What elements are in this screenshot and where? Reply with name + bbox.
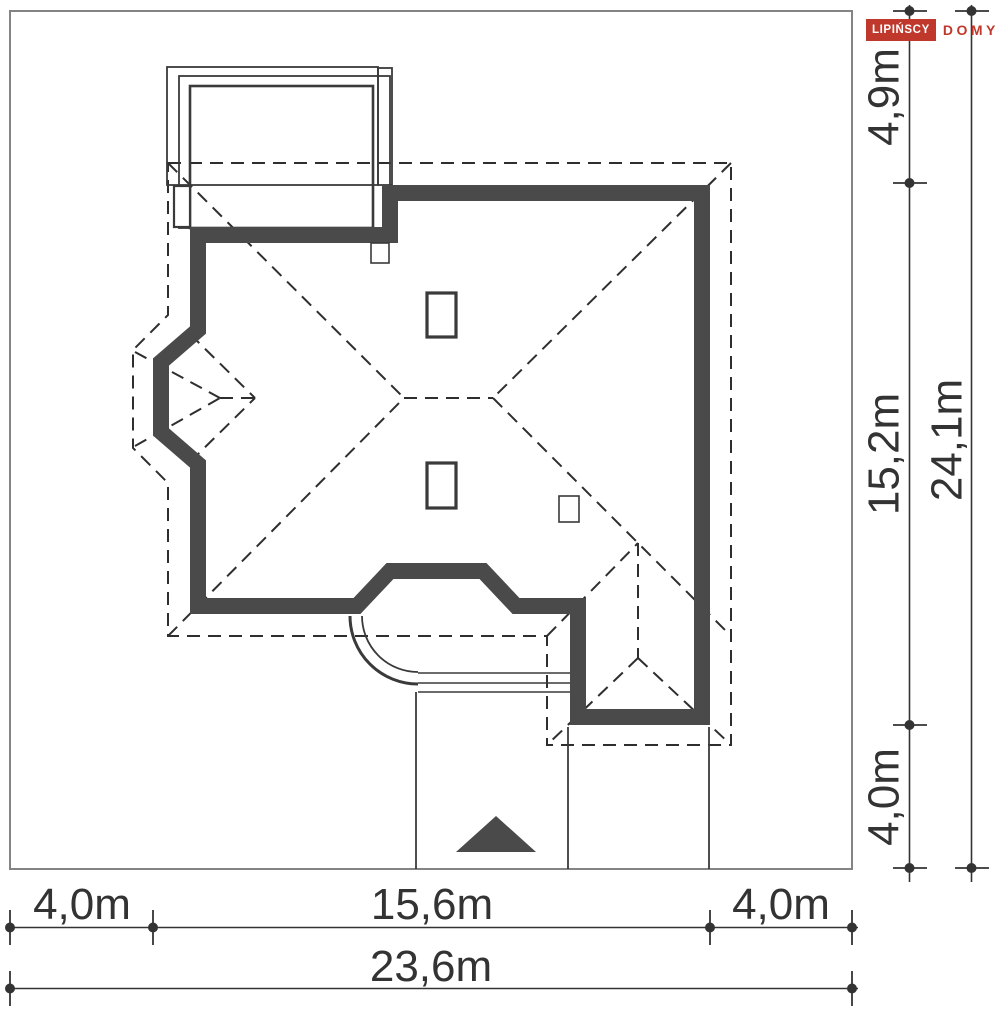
- roof-valley-line: [547, 543, 638, 636]
- dimension-markers: [5, 6, 989, 1006]
- dim-label-bottom-center: 15,6m: [371, 880, 493, 929]
- logo-brand-box: LIPIŃSCY: [866, 19, 936, 41]
- plot-boundary: [10, 11, 852, 869]
- bay-hip-upper-inner: [190, 334, 255, 398]
- bay-hip-upper-outer: [135, 352, 220, 398]
- pergola-mid-outline: [179, 76, 390, 228]
- dim-label-right-bottom: 4,0m: [859, 748, 908, 846]
- chimney-1: [427, 293, 456, 337]
- dim-label-right-total: 24,1m: [922, 379, 971, 501]
- site-plan-page: 4,9m 15,2m 4,0m 24,1m 4,0m 15,6m 4,0m 23…: [0, 0, 995, 1014]
- bay-hip-lower-inner: [190, 398, 255, 462]
- dim-label-right-middle: 15,2m: [859, 393, 908, 515]
- entrance-arrow-icon: [456, 816, 536, 852]
- roof-ridge-and-hips: [135, 163, 731, 744]
- vent-stack: [559, 496, 579, 522]
- garage-pergola-structure: [167, 67, 392, 228]
- dim-label-right-top: 4,9m: [859, 48, 908, 146]
- site-plan-drawing: 4,9m 15,2m 4,0m 24,1m 4,0m 15,6m 4,0m 23…: [0, 0, 995, 1014]
- wing-hip-sw: [548, 658, 638, 744]
- logo-domy-text: DOMY: [943, 22, 995, 38]
- dim-label-bottom-right: 4,0m: [732, 880, 830, 929]
- lipinscy-domy-logo: LIPIŃSCY DOMY: [866, 19, 995, 41]
- wing-hip-se: [638, 658, 730, 744]
- vent-stack-top: [371, 243, 389, 263]
- dim-label-bottom-left: 4,0m: [33, 880, 131, 929]
- pergola-inner-outline: [190, 86, 373, 228]
- pergola-left-pillar: [174, 186, 190, 227]
- roof-overhang-outline: [133, 163, 731, 745]
- entrance-arc-outer: [350, 616, 418, 684]
- dim-label-bottom-total: 23,6m: [370, 942, 492, 991]
- chimney-2: [427, 463, 456, 508]
